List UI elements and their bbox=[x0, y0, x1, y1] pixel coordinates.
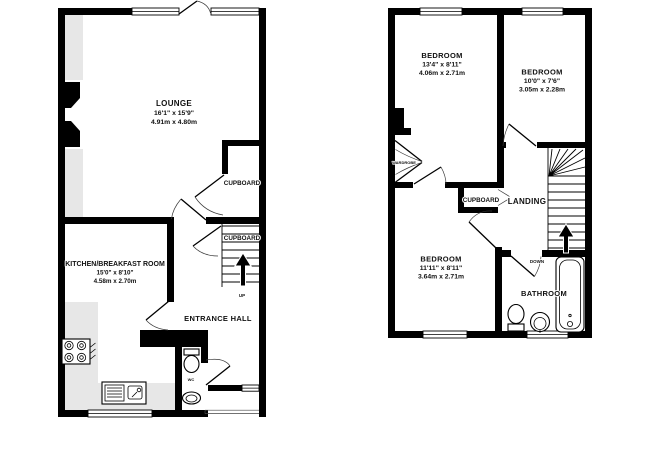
wall-segment bbox=[206, 217, 259, 224]
cupboard-upper-label: CUPBOARD bbox=[224, 180, 261, 187]
cupboard-upper-door bbox=[195, 175, 224, 197]
bedroom3-size-metric: 3.64m x 2.71m bbox=[418, 274, 464, 281]
cupboard-under-stairs-label: CUPBOARD bbox=[224, 235, 261, 242]
kitchen-size-imperial: 15'0" x 8'10" bbox=[97, 270, 134, 277]
wall-segment bbox=[445, 182, 504, 188]
porch-outline bbox=[205, 410, 259, 413]
wall-segment bbox=[208, 385, 242, 391]
kitchen-window bbox=[88, 410, 152, 417]
wall-segment bbox=[585, 8, 592, 338]
front-door bbox=[242, 385, 259, 391]
cupboard-upper-door-swing bbox=[195, 197, 223, 215]
landing-label: LANDING bbox=[508, 197, 547, 206]
lounge-door-swing bbox=[172, 199, 182, 219]
wall-segment bbox=[395, 182, 413, 188]
bathroom-toilet bbox=[508, 305, 524, 332]
kitchen-door bbox=[146, 301, 169, 320]
lounge-size-imperial: 16'1" x 15'9" bbox=[154, 110, 194, 117]
bedroom2-label: BEDROOM bbox=[521, 68, 562, 77]
bedroom2-size-metric: 3.05m x 2.28m bbox=[519, 87, 565, 94]
bedroom1-door-swing bbox=[441, 167, 446, 184]
wall-segment bbox=[58, 217, 170, 224]
bathroom-label: BATHROOM bbox=[521, 289, 567, 298]
bedroom3-size-imperial: 11'11" x 8'11" bbox=[420, 265, 463, 272]
wall-segment bbox=[175, 347, 182, 410]
cupboard-wall bbox=[222, 140, 228, 174]
wc-basin bbox=[183, 392, 201, 404]
bedroom1-door bbox=[414, 167, 441, 184]
kitchen-sink bbox=[102, 382, 146, 404]
kitchen-door-swing bbox=[146, 320, 168, 330]
ground-floor-plan: LOUNGE 16'1" x 15'9" 4.91m x 4.80m KITCH… bbox=[58, 1, 266, 417]
cupboard-first-label: CUPBOARD bbox=[463, 197, 500, 204]
wall-segment bbox=[388, 331, 423, 338]
wall-segment bbox=[462, 8, 522, 15]
down-arrow bbox=[558, 224, 574, 253]
wall-segment bbox=[497, 142, 506, 148]
lounge-door bbox=[181, 199, 206, 220]
stairs-up-label: UP bbox=[239, 293, 245, 298]
stairs-first bbox=[548, 148, 585, 253]
wall-segment bbox=[140, 330, 208, 347]
wc-toilet bbox=[184, 349, 199, 373]
floorplan-page: LOUNGE 16'1" x 15'9" 4.91m x 4.80m KITCH… bbox=[0, 0, 650, 450]
wc-door-swing bbox=[206, 359, 230, 366]
cupboard-wall bbox=[228, 140, 259, 146]
wall-segment bbox=[152, 410, 208, 417]
bedroom3-label: BEDROOM bbox=[420, 255, 461, 264]
wall-segment bbox=[259, 8, 266, 417]
wall-segment bbox=[467, 331, 527, 338]
cupboard-under-stairs-door-swing bbox=[193, 246, 218, 256]
bedroom1-size-metric: 4.06m x 2.71m bbox=[419, 70, 465, 77]
lounge-window-left bbox=[132, 8, 179, 15]
wardrobe-label: WARDROBE bbox=[392, 160, 416, 165]
bedroom1-label: BEDROOM bbox=[421, 51, 462, 60]
wall-segment bbox=[167, 217, 174, 302]
garden-door bbox=[179, 1, 197, 14]
wall-segment bbox=[497, 15, 504, 188]
cupboard-door-upper-leaf bbox=[498, 190, 510, 197]
wall-segment bbox=[495, 250, 511, 257]
garden-door-swing bbox=[197, 1, 211, 13]
wc-label: WC bbox=[188, 377, 195, 382]
bedroom3-window bbox=[423, 331, 467, 338]
wall-segment bbox=[563, 8, 592, 15]
floor-plan-image: LOUNGE 16'1" x 15'9" 4.91m x 4.80m KITCH… bbox=[0, 0, 650, 450]
bedroom1-size-imperial: 13'4" x 8'11" bbox=[422, 62, 462, 69]
hob bbox=[62, 339, 96, 364]
lounge-size-metric: 4.91m x 4.80m bbox=[151, 119, 197, 126]
kitchen-label: KITCHEN/BREAKFAST ROOM bbox=[65, 261, 165, 268]
lounge-window-right bbox=[211, 8, 259, 15]
wall-segment bbox=[58, 8, 132, 15]
bathroom-basin bbox=[531, 313, 550, 334]
bedroom3-door bbox=[469, 222, 496, 248]
wall-segment bbox=[495, 247, 502, 331]
first-floor-plan: BEDROOM 13'4" x 8'11" 4.06m x 2.71m BEDR… bbox=[388, 8, 592, 338]
kitchen-size-metric: 4.58m x 2.70m bbox=[94, 278, 137, 285]
chimney-breast-bedroom bbox=[395, 108, 411, 135]
wall-segment bbox=[58, 410, 88, 417]
stairs-ground bbox=[222, 224, 259, 287]
wall-segment bbox=[537, 142, 585, 148]
lounge-label: LOUNGE bbox=[156, 99, 192, 108]
wall-segment bbox=[388, 8, 420, 15]
bedroom2-size-imperial: 10'0" x 7'6" bbox=[524, 78, 560, 85]
stairs-down-label: DOWN bbox=[530, 259, 544, 264]
cupboard-under-stairs-door bbox=[193, 226, 221, 246]
wc-door bbox=[206, 366, 230, 385]
bedroom2-window bbox=[522, 8, 563, 15]
entrance-hall-label: ENTRANCE HALL bbox=[184, 314, 252, 323]
wall-segment bbox=[388, 8, 395, 338]
bedroom2-door bbox=[509, 124, 536, 146]
bedroom1-window bbox=[420, 8, 462, 15]
